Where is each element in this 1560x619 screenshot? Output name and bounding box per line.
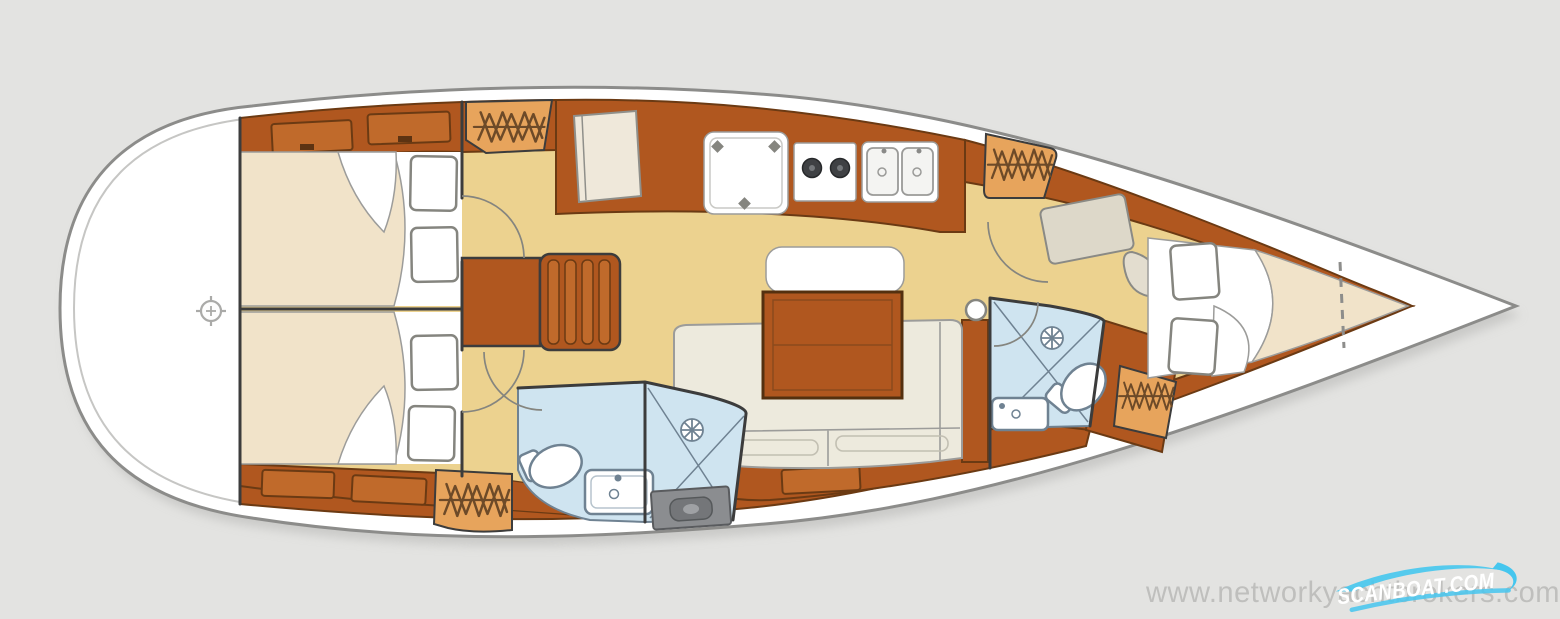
- aft-heads: [518, 382, 747, 530]
- sink-basin: [867, 148, 898, 195]
- pillow: [411, 227, 458, 282]
- burner-center: [837, 165, 843, 171]
- pillow: [408, 406, 455, 461]
- locker-drawer: [351, 475, 426, 505]
- hanging-locker-starboard: [434, 470, 512, 532]
- pillow: [410, 156, 457, 211]
- pillow: [411, 335, 458, 390]
- compression-post: [966, 300, 986, 320]
- engine-box: [462, 258, 540, 346]
- step: [599, 260, 610, 344]
- shower-drain-icon: [681, 419, 703, 441]
- sink-faucet: [882, 149, 887, 154]
- locker-drawer: [262, 470, 335, 498]
- yacht-floorplan: www.networkyachtbrokers.com SCANBOAT.COM: [0, 0, 1560, 619]
- hanging-locker-port: [466, 100, 552, 153]
- settee-end-cabinet: [962, 320, 988, 462]
- sink-basin: [902, 148, 933, 195]
- backrest-bolster: [766, 247, 904, 293]
- drawer-handle: [300, 144, 314, 150]
- step: [565, 260, 576, 344]
- pillow: [1168, 318, 1218, 375]
- shower-drain-icon: [1041, 327, 1063, 349]
- aft-cabin-starboard: [240, 312, 462, 464]
- step: [548, 260, 559, 344]
- shower-grate: [651, 486, 731, 529]
- pillow: [1170, 243, 1220, 300]
- companionway: [462, 254, 620, 350]
- basin-faucet: [999, 403, 1005, 409]
- aft-cabin-port: [240, 152, 462, 306]
- step: [582, 260, 593, 344]
- burner-center: [809, 165, 815, 171]
- sink-faucet: [917, 149, 922, 154]
- basin-faucet: [615, 475, 622, 482]
- drawer-handle: [398, 136, 412, 142]
- settee-drawer: [781, 466, 860, 494]
